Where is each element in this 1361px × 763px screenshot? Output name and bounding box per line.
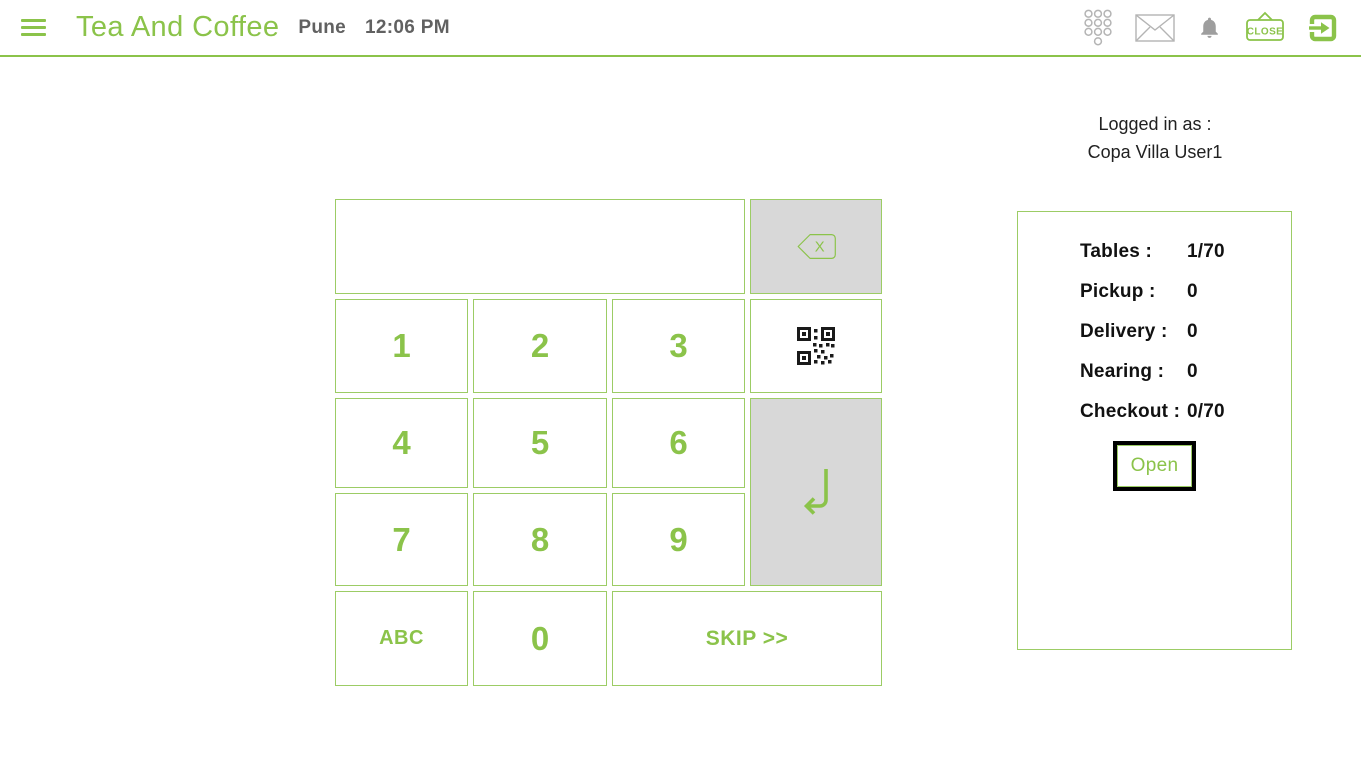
status-label: Nearing : (1080, 361, 1187, 383)
key-5[interactable]: 5 (473, 398, 607, 488)
qr-scan-key[interactable] (750, 299, 882, 393)
status-value: 0 (1187, 361, 1198, 383)
key-2[interactable]: 2 (473, 299, 607, 393)
status-row-nearing: Nearing : 0 (1018, 352, 1291, 392)
backspace-key[interactable]: X (750, 199, 882, 294)
key-3[interactable]: 3 (612, 299, 745, 393)
key-0[interactable]: 0 (473, 591, 607, 686)
status-label: Delivery : (1080, 321, 1187, 343)
status-value: 0/70 (1187, 401, 1225, 423)
key-7[interactable]: 7 (335, 493, 468, 586)
app-title: Tea And Coffee (76, 11, 279, 44)
skip-button[interactable]: SKIP >> (612, 591, 882, 686)
header-icons: CLOSE (1083, 9, 1361, 47)
backspace-icon: X (793, 230, 839, 263)
open-button[interactable]: Open (1117, 445, 1193, 487)
key-1[interactable]: 1 (335, 299, 468, 393)
abc-key[interactable]: ABC (335, 591, 468, 686)
location-label: Pune (298, 17, 346, 39)
qr-code-icon (797, 327, 835, 365)
clock-time: 12:06 PM (365, 17, 450, 39)
backspace-glyph: X (815, 240, 825, 256)
app-header: Tea And Coffee Pune 12:06 PM (0, 0, 1361, 57)
key-9[interactable]: 9 (612, 493, 745, 586)
open-button-frame: Open (1113, 441, 1197, 491)
status-label: Tables : (1080, 241, 1187, 263)
key-6[interactable]: 6 (612, 398, 745, 488)
logged-in-block: Logged in as : Copa Villa User1 (1017, 110, 1293, 166)
logged-in-user-name: Copa Villa User1 (1017, 138, 1293, 166)
close-sign-icon[interactable]: CLOSE (1244, 11, 1286, 44)
dialpad-icon[interactable] (1083, 9, 1113, 47)
key-4[interactable]: 4 (335, 398, 468, 488)
key-8[interactable]: 8 (473, 493, 607, 586)
mail-icon[interactable] (1135, 14, 1175, 42)
pin-keypad: X 1 2 3 4 5 6 (335, 199, 882, 686)
status-row-pickup: Pickup : 0 (1018, 272, 1291, 312)
close-sign-text: CLOSE (1247, 27, 1283, 38)
hamburger-menu-icon[interactable] (21, 15, 46, 40)
notifications-bell-icon[interactable] (1197, 14, 1222, 41)
status-label: Checkout : (1080, 401, 1187, 423)
logged-in-label: Logged in as : (1017, 110, 1293, 138)
status-row-checkout: Checkout : 0/70 (1018, 392, 1291, 432)
enter-icon (798, 465, 834, 519)
enter-key[interactable] (750, 398, 882, 586)
order-status-panel: Tables : 1/70 Pickup : 0 Delivery : 0 Ne… (1017, 211, 1292, 650)
pin-display-field[interactable] (335, 199, 745, 294)
status-row-tables: Tables : 1/70 (1018, 232, 1291, 272)
status-label: Pickup : (1080, 281, 1187, 303)
status-value: 0 (1187, 281, 1198, 303)
status-row-delivery: Delivery : 0 (1018, 312, 1291, 352)
status-value: 1/70 (1187, 241, 1225, 263)
exit-icon[interactable] (1308, 13, 1338, 43)
status-value: 0 (1187, 321, 1198, 343)
